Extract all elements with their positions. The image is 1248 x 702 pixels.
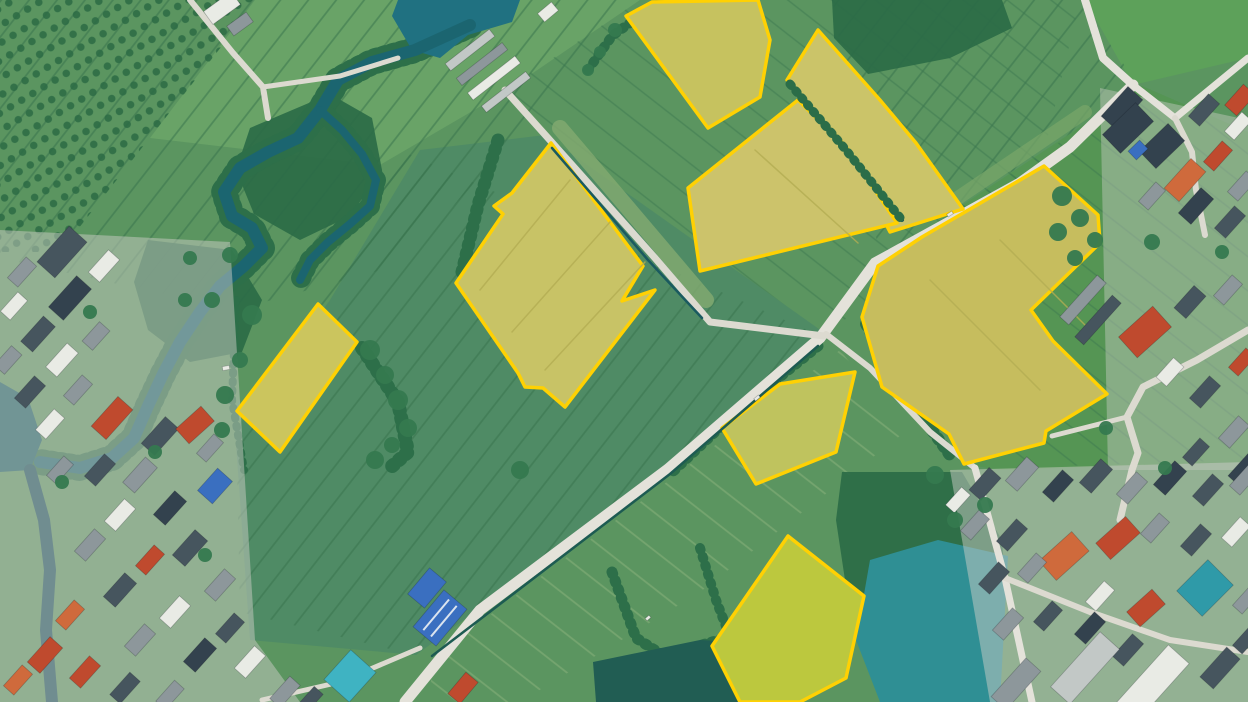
tree-canopy [399,419,417,437]
tree-canopy [1071,209,1089,227]
tree-canopy [594,46,606,58]
tree-canopy [926,466,944,484]
tree-canopy [83,305,97,319]
tree-canopy [232,352,248,368]
tree-canopy [1144,234,1160,250]
tree-canopy [204,292,220,308]
tree-canopy [222,247,238,263]
tree-canopy [582,64,594,76]
tree-canopy [1067,250,1083,266]
tree-canopy [1158,461,1172,475]
tree-canopy [148,445,162,459]
building-roof [222,365,230,370]
tree-canopy [608,23,622,37]
tree-canopy [178,293,192,307]
tree-canopy [384,437,400,453]
tree-canopy [1049,223,1067,241]
aerial-map-screenshot [0,0,1248,702]
tree-canopy [366,451,384,469]
tree-canopy [55,475,69,489]
tree-canopy [1052,186,1072,206]
tree-canopy [947,512,963,528]
tree-canopy [242,305,262,325]
aerial-map-image [0,0,1248,702]
tree-canopy [1215,245,1229,259]
tree-canopy [360,340,380,360]
tree-canopy [1087,232,1103,248]
tree-canopy [214,422,230,438]
tree-canopy [216,386,234,404]
tree-canopy [1099,421,1113,435]
tree-canopy [388,390,408,410]
tree-canopy [198,548,212,562]
tree-canopy [183,251,197,265]
tree-canopy [376,366,394,384]
tree-canopy [977,497,993,513]
tree-canopy [511,461,529,479]
